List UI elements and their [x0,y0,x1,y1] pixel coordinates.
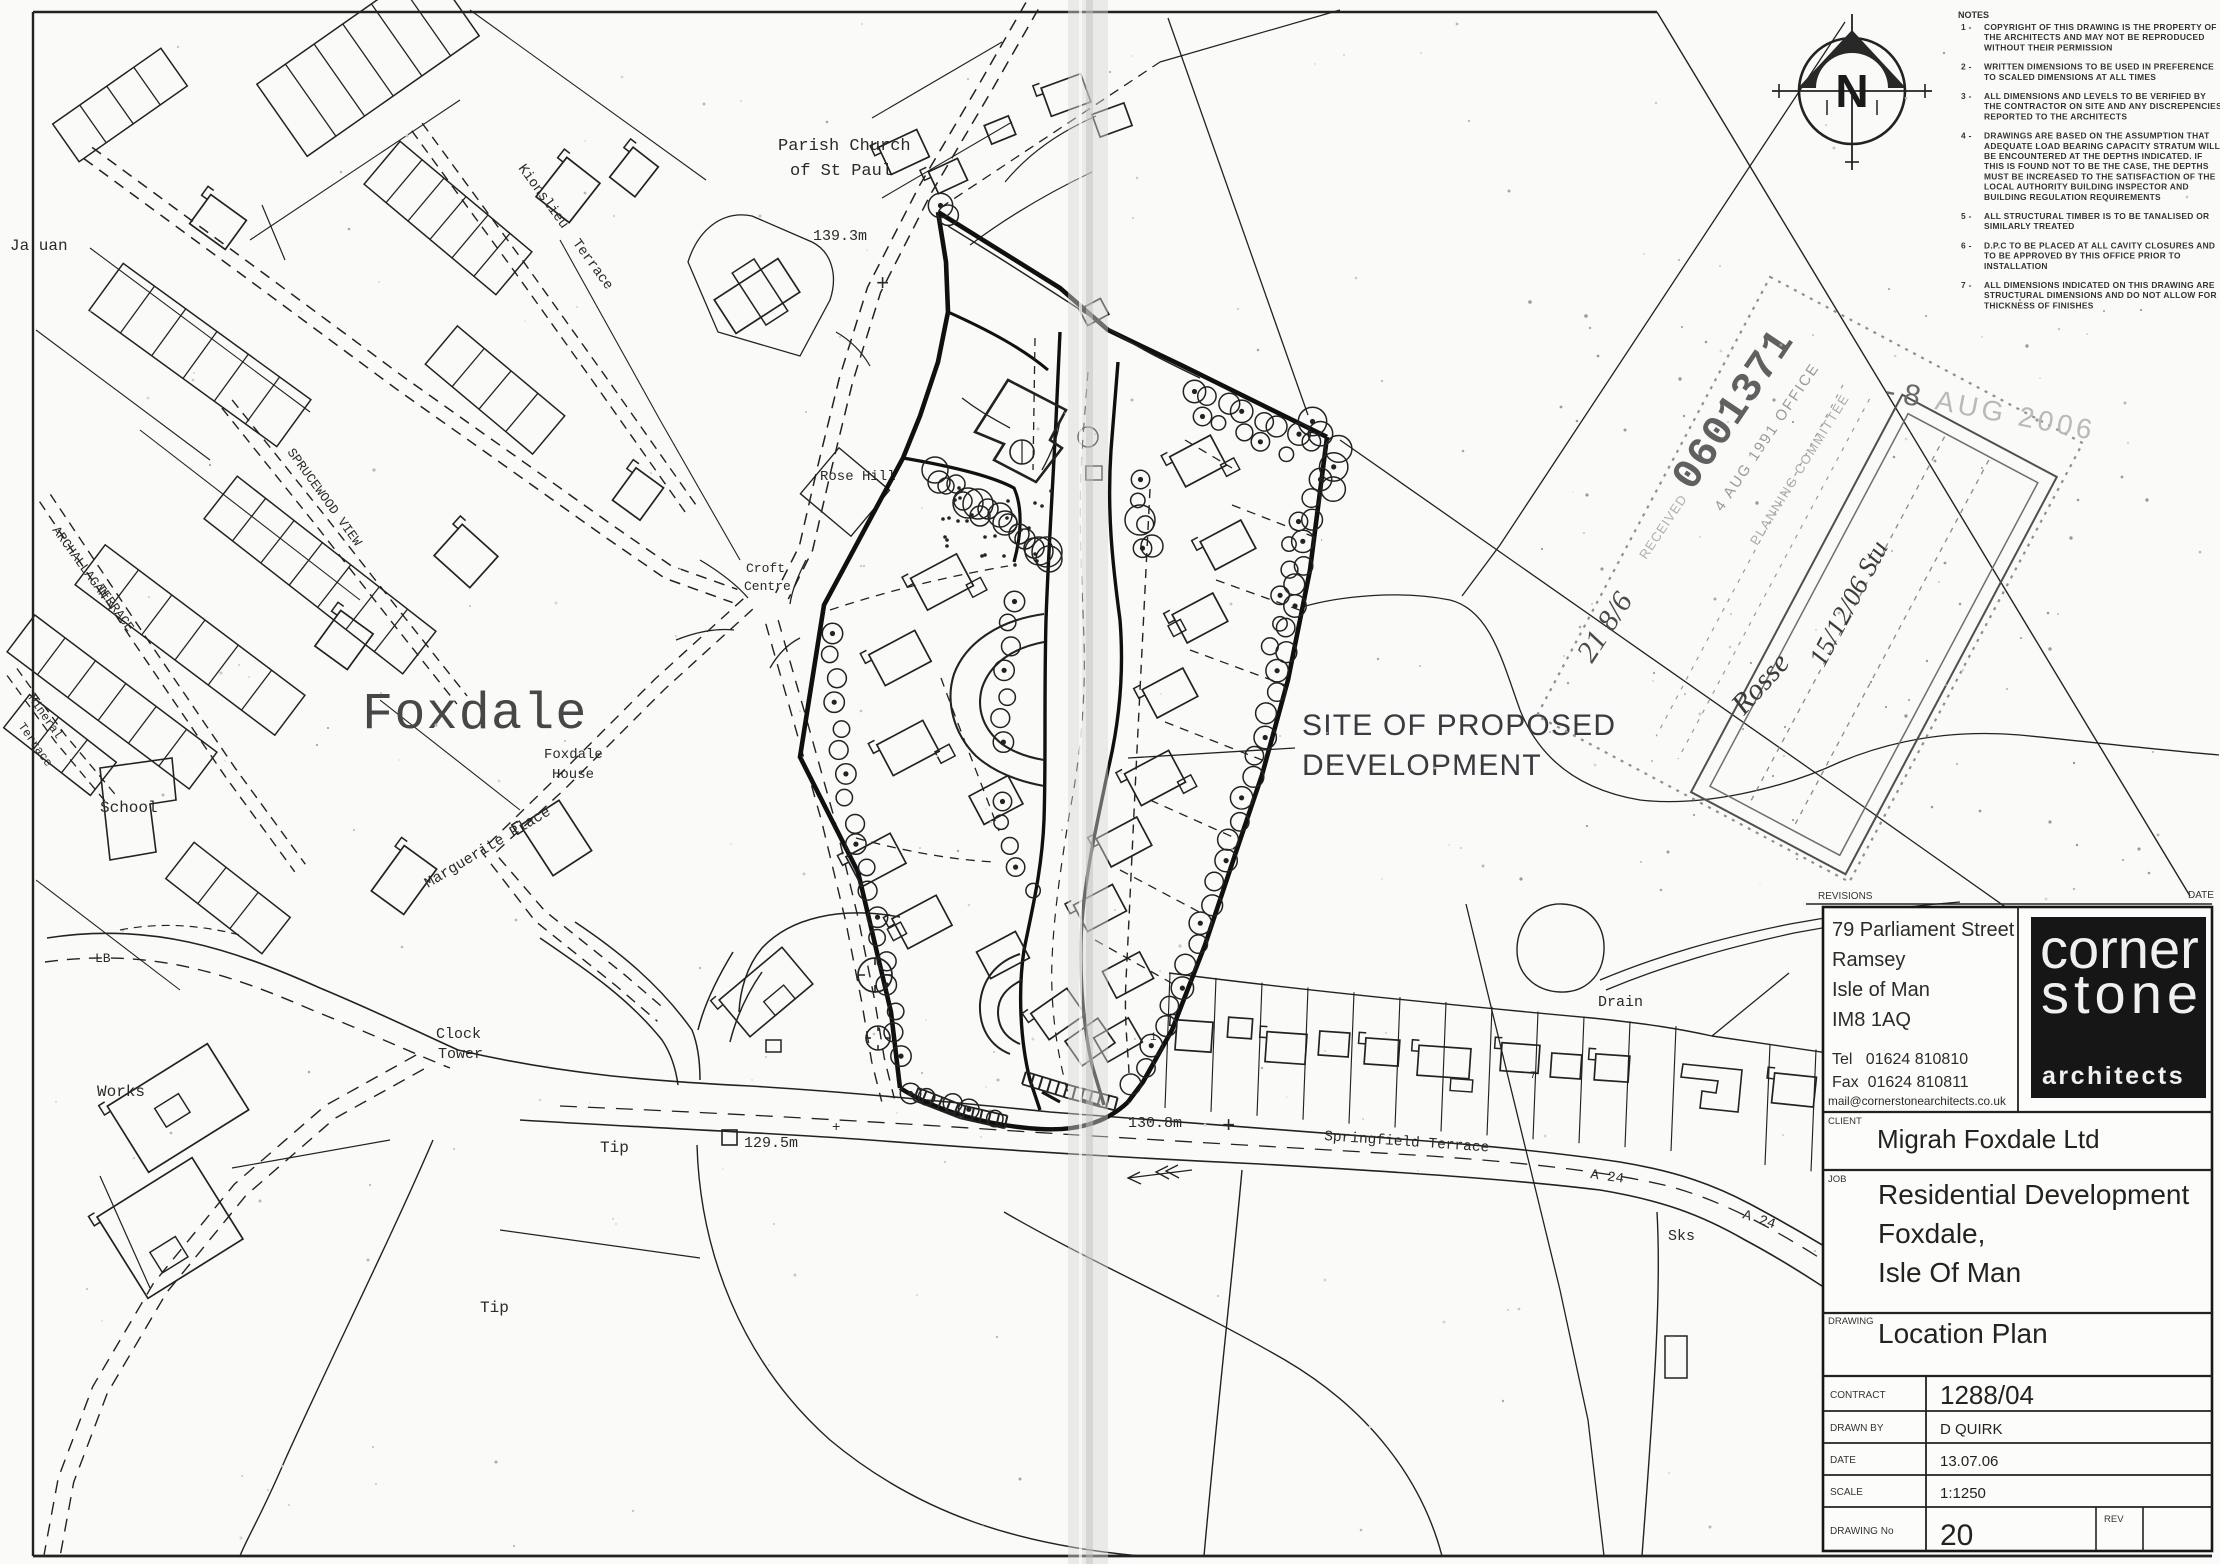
svg-text:6 -: 6 - [1961,240,1972,250]
svg-text:+: + [1222,1114,1235,1139]
svg-text:SIMILARLY TREATED: SIMILARLY TREATED [1984,221,2075,231]
svg-text:SITE OF PROPOSED: SITE OF PROPOSED [1302,709,1616,742]
svg-text:1 -: 1 - [1961,22,1972,32]
svg-text:Parish Church: Parish Church [778,137,911,156]
svg-text:Location Plan: Location Plan [1878,1318,2048,1349]
svg-text:4 -: 4 - [1961,131,1972,141]
svg-text:D.P.C TO BE PLACED AT ALL CAVI: D.P.C TO BE PLACED AT ALL CAVITY CLOSURE… [1984,240,2215,250]
svg-text:REPORTED TO THE ARCHITECTS: REPORTED TO THE ARCHITECTS [1984,111,2127,121]
svg-text:REV: REV [2104,1514,2124,1525]
svg-text:Foxdale,: Foxdale, [1878,1218,1985,1249]
svg-text:DRAWING: DRAWING [1828,1316,1874,1327]
svg-text:SCALE: SCALE [1830,1487,1863,1498]
svg-text:ADEQUATE LOAD BEARING CAPACITY: ADEQUATE LOAD BEARING CAPACITY STRATUM W… [1984,141,2220,151]
svg-text:CLIENT: CLIENT [1828,1116,1862,1127]
svg-text:IM8 1AQ: IM8 1AQ [1832,1009,1911,1031]
svg-text:of St Paul: of St Paul [790,162,892,181]
svg-text:2 -: 2 - [1961,62,1972,72]
svg-text:1288/04: 1288/04 [1940,1380,2034,1410]
svg-text:Sks: Sks [1668,1228,1695,1245]
svg-text:TO SCALED DIMENSIONS AT ALL TI: TO SCALED DIMENSIONS AT ALL TIMES [1984,72,2156,82]
svg-text:ALL DIMENSIONS INDICATED ON TH: ALL DIMENSIONS INDICATED ON THIS DRAWING… [1984,280,2215,290]
svg-text:3 -: 3 - [1961,91,1972,101]
svg-text:13.07.06: 13.07.06 [1940,1453,1998,1470]
svg-text:ALL DIMENSIONS AND LEVELS TO B: ALL DIMENSIONS AND LEVELS TO BE VERIFIED… [1984,91,2206,101]
svg-text:House: House [552,767,594,783]
svg-text:LOCAL AUTHORITY BUILDING INSPE: LOCAL AUTHORITY BUILDING INSPECTOR AND [1984,182,2189,192]
svg-text:DATE: DATE [2188,890,2214,901]
svg-text:130.8m: 130.8m [1128,1115,1182,1132]
svg-text:NOTES: NOTES [1958,10,1989,20]
svg-text:Ramsey: Ramsey [1832,949,1905,971]
svg-text:Centre: Centre [744,579,791,594]
svg-text:BUILDING REGULATION REQUIREMEN: BUILDING REGULATION REQUIREMENTS [1984,192,2161,202]
svg-text:Fax 01624 810811: Fax 01624 810811 [1832,1074,1969,1091]
svg-text:WITHOUT THEIR PERMISSION: WITHOUT THEIR PERMISSION [1984,42,2113,52]
svg-text:Foxdale: Foxdale [544,747,603,763]
svg-text:Isle Of Man: Isle Of Man [1878,1257,2021,1288]
svg-text:THIS IS FOUND NOT TO BE THE CA: THIS IS FOUND NOT TO BE THE CASE, THE DE… [1984,161,2209,171]
svg-text:129.5m: 129.5m [744,1135,798,1152]
svg-text:STRUCTURAL DIMENSIONS AND DO N: STRUCTURAL DIMENSIONS AND DO NOT ALLOW F… [1984,290,2217,300]
svg-text:- 8: - 8 [1883,374,1924,413]
svg-text:Residential Development: Residential Development [1878,1179,2190,1210]
svg-text:Clock: Clock [436,1026,481,1043]
svg-text:Works: Works [97,1083,145,1101]
svg-text:DRAWN BY: DRAWN BY [1830,1423,1884,1434]
svg-text:stone: stone [2041,962,2203,1025]
svg-text:CONTRACT: CONTRACT [1830,1390,1886,1401]
svg-text:Tower: Tower [438,1046,483,1063]
svg-text:JOB: JOB [1828,1174,1846,1185]
svg-text:COPYRIGHT OF THIS DRAWING IS T: COPYRIGHT OF THIS DRAWING IS THE PROPERT… [1984,22,2217,32]
svg-text:79 Parliament Street: 79 Parliament Street [1832,919,2015,941]
svg-text:Rose Hill: Rose Hill [820,469,896,485]
svg-text:LB: LB [95,951,111,966]
svg-text:Migrah Foxdale Ltd: Migrah Foxdale Ltd [1877,1124,2100,1154]
svg-text:mail@cornerstonearchitects.co.: mail@cornerstonearchitects.co.uk [1828,1094,2006,1108]
svg-text:1:1250: 1:1250 [1940,1485,1986,1502]
svg-text:REVISIONS: REVISIONS [1818,891,1873,902]
svg-text:ALL STRUCTURAL TIMBER IS TO BE: ALL STRUCTURAL TIMBER IS TO BE TANALISED… [1984,211,2209,221]
svg-text:DRAWING No: DRAWING No [1830,1526,1894,1537]
svg-text:Drain: Drain [1598,994,1643,1011]
svg-text:THICKNESS OF FINISHES: THICKNESS OF FINISHES [1984,300,2094,310]
svg-text:Foxdale: Foxdale [362,685,587,744]
svg-text:DEVELOPMENT: DEVELOPMENT [1302,749,1542,782]
svg-text:Croft: Croft [746,561,785,576]
svg-text:+: + [832,1120,840,1136]
svg-text:Tip: Tip [480,1299,509,1317]
svg-text:School: School [100,799,158,817]
svg-text:D QUIRK: D QUIRK [1940,1421,2003,1438]
svg-text:20: 20 [1940,1519,1973,1552]
svg-text:architects: architects [2042,1062,2185,1090]
svg-text:Tel 01624 810810: Tel 01624 810810 [1832,1051,1968,1068]
svg-text:N: N [1835,65,1868,117]
svg-text:Isle of Man: Isle of Man [1832,979,1930,1001]
svg-text:WRITTEN DIMENSIONS TO BE USED: WRITTEN DIMENSIONS TO BE USED IN PREFERE… [1984,62,2214,72]
svg-text:139.3m: 139.3m [813,228,867,245]
svg-text:TO BE APPROVED BY THIS OFFICE: TO BE APPROVED BY THIS OFFICE PRIOR TO [1984,251,2181,261]
svg-text:5 -: 5 - [1961,211,1972,221]
svg-text:BE ENCOUNTERED AT THE DEPTHS I: BE ENCOUNTERED AT THE DEPTHS INDICATED. … [1984,151,2203,161]
svg-text:INSTALLATION: INSTALLATION [1984,261,2048,271]
svg-text:Tip: Tip [600,1139,629,1157]
svg-text:DATE: DATE [1830,1455,1856,1466]
svg-text:Ja uan: Ja uan [10,237,68,255]
svg-text:7: 7 [1530,1071,1536,1082]
svg-text:THE CONTRACTOR ON SITE AND ANY: THE CONTRACTOR ON SITE AND ANY DISCREPEN… [1984,101,2220,111]
svg-text:MUST BE INCREASED TO THE SATIS: MUST BE INCREASED TO THE SATISFACTION OF… [1984,171,2216,181]
svg-text:+: + [876,272,889,297]
svg-text:THE ARCHITECTS AND MAY NOT BE: THE ARCHITECTS AND MAY NOT BE REPRODUCED [1984,32,2205,42]
svg-text:7 -: 7 - [1961,280,1972,290]
svg-text:DRAWINGS ARE BASED ON THE ASSU: DRAWINGS ARE BASED ON THE ASSUMPTION THA… [1984,131,2210,141]
